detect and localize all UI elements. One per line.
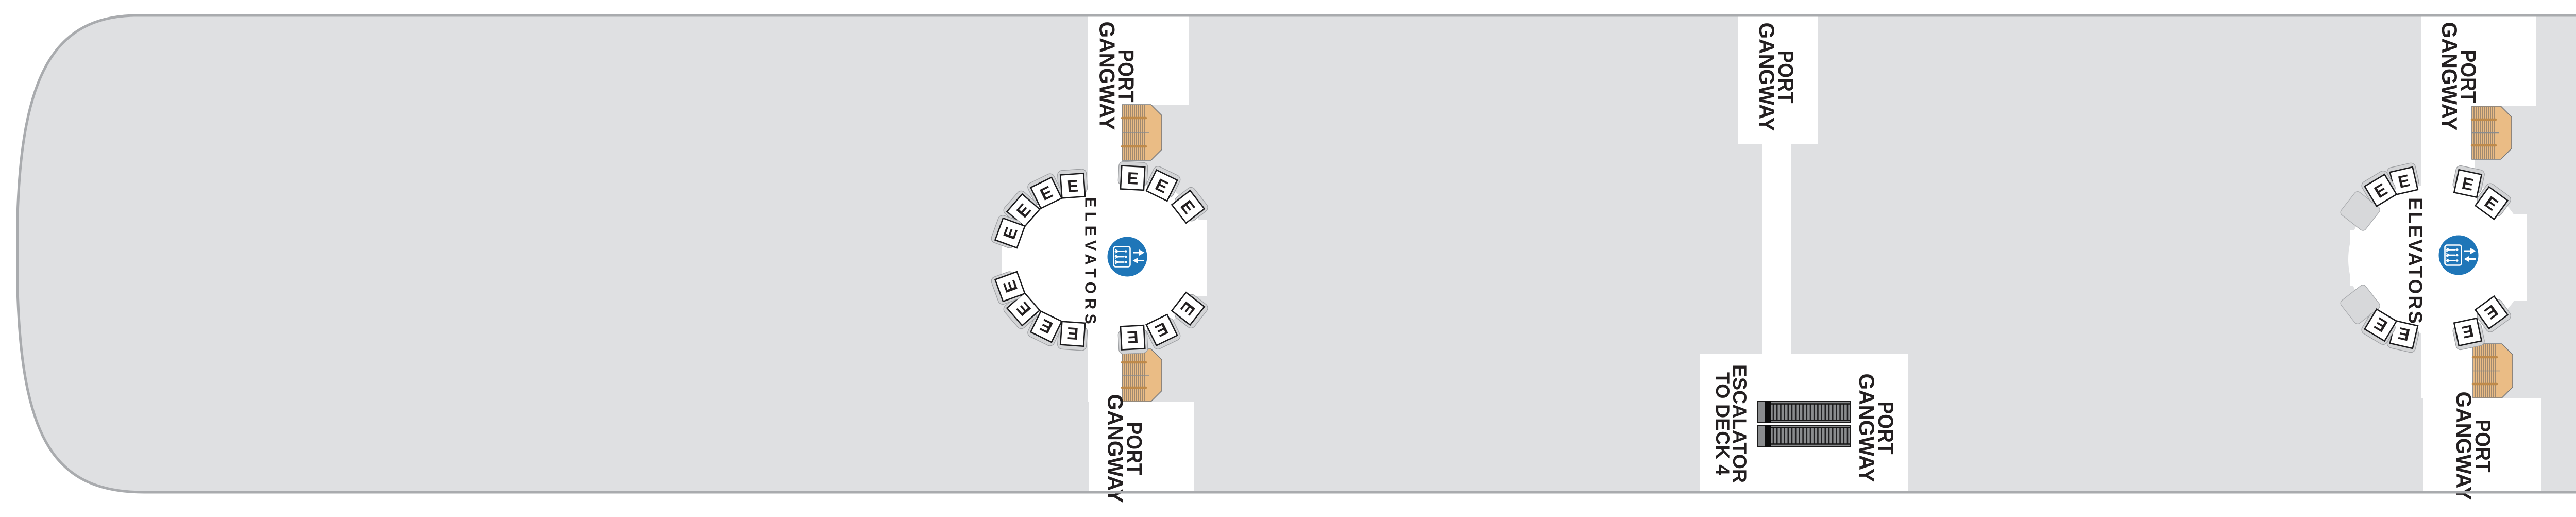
- svg-text:GANGWAY: GANGWAY: [1095, 22, 1120, 130]
- svg-text:ELEVATORS: ELEVATORS: [1082, 197, 1099, 328]
- svg-text:GANGWAY: GANGWAY: [2437, 22, 2462, 131]
- svg-text:E: E: [1127, 169, 1139, 188]
- svg-text:E: E: [1127, 327, 1139, 347]
- svg-text:E: E: [1066, 176, 1079, 196]
- svg-text:TO DECK 4: TO DECK 4: [1712, 372, 1733, 475]
- svg-text:ELEVATORS: ELEVATORS: [2405, 197, 2426, 325]
- svg-text:GANGWAY: GANGWAY: [1104, 394, 1128, 503]
- svg-text:E: E: [1066, 324, 1079, 343]
- svg-text:GANGWAY: GANGWAY: [1855, 374, 1879, 482]
- svg-text:GANGWAY: GANGWAY: [1755, 23, 1779, 131]
- svg-text:GANGWAY: GANGWAY: [2452, 392, 2476, 501]
